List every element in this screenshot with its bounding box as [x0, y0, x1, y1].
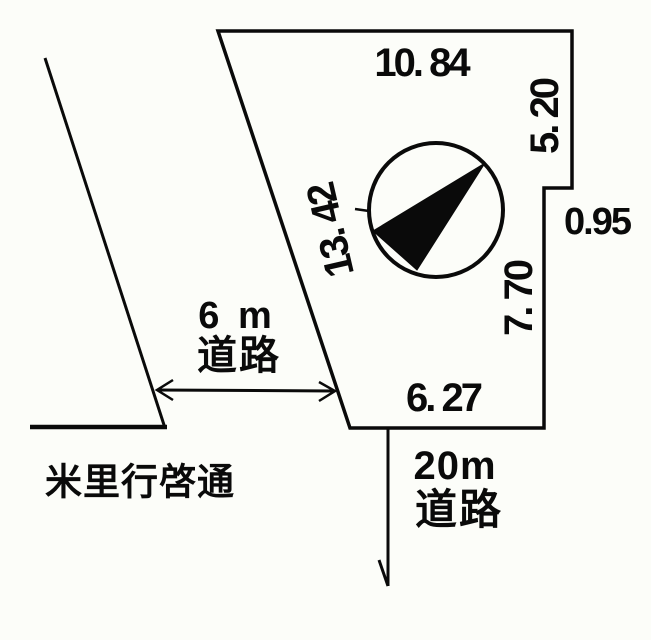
dimension-right-upper-label: 5. 20 [525, 80, 565, 154]
road-width-arrow [157, 380, 335, 401]
south-road-type-label: 道路 [415, 489, 503, 531]
plot-survey-diagram: 10. 84 5. 20 0.95 7. 70 6. 27 13. 42 6 m… [0, 0, 651, 640]
south-road-arrow [379, 429, 388, 586]
dimension-bottom-label: 6. 27 [406, 378, 480, 418]
dimension-top-label: 10. 84 [374, 43, 467, 83]
north-needle [373, 163, 485, 270]
dimension-right-lower-label: 7. 70 [499, 262, 539, 336]
west-road-edge-line [45, 58, 165, 428]
west-road-width-label: 6 m [198, 297, 275, 335]
street-name-label: 米里行啓通 [45, 464, 235, 501]
north-arrow-icon [355, 143, 503, 277]
south-road-width-label: 20m [413, 446, 496, 486]
west-road-type-label: 道路 [197, 336, 281, 376]
dimension-step-label: 0.95 [564, 203, 630, 241]
